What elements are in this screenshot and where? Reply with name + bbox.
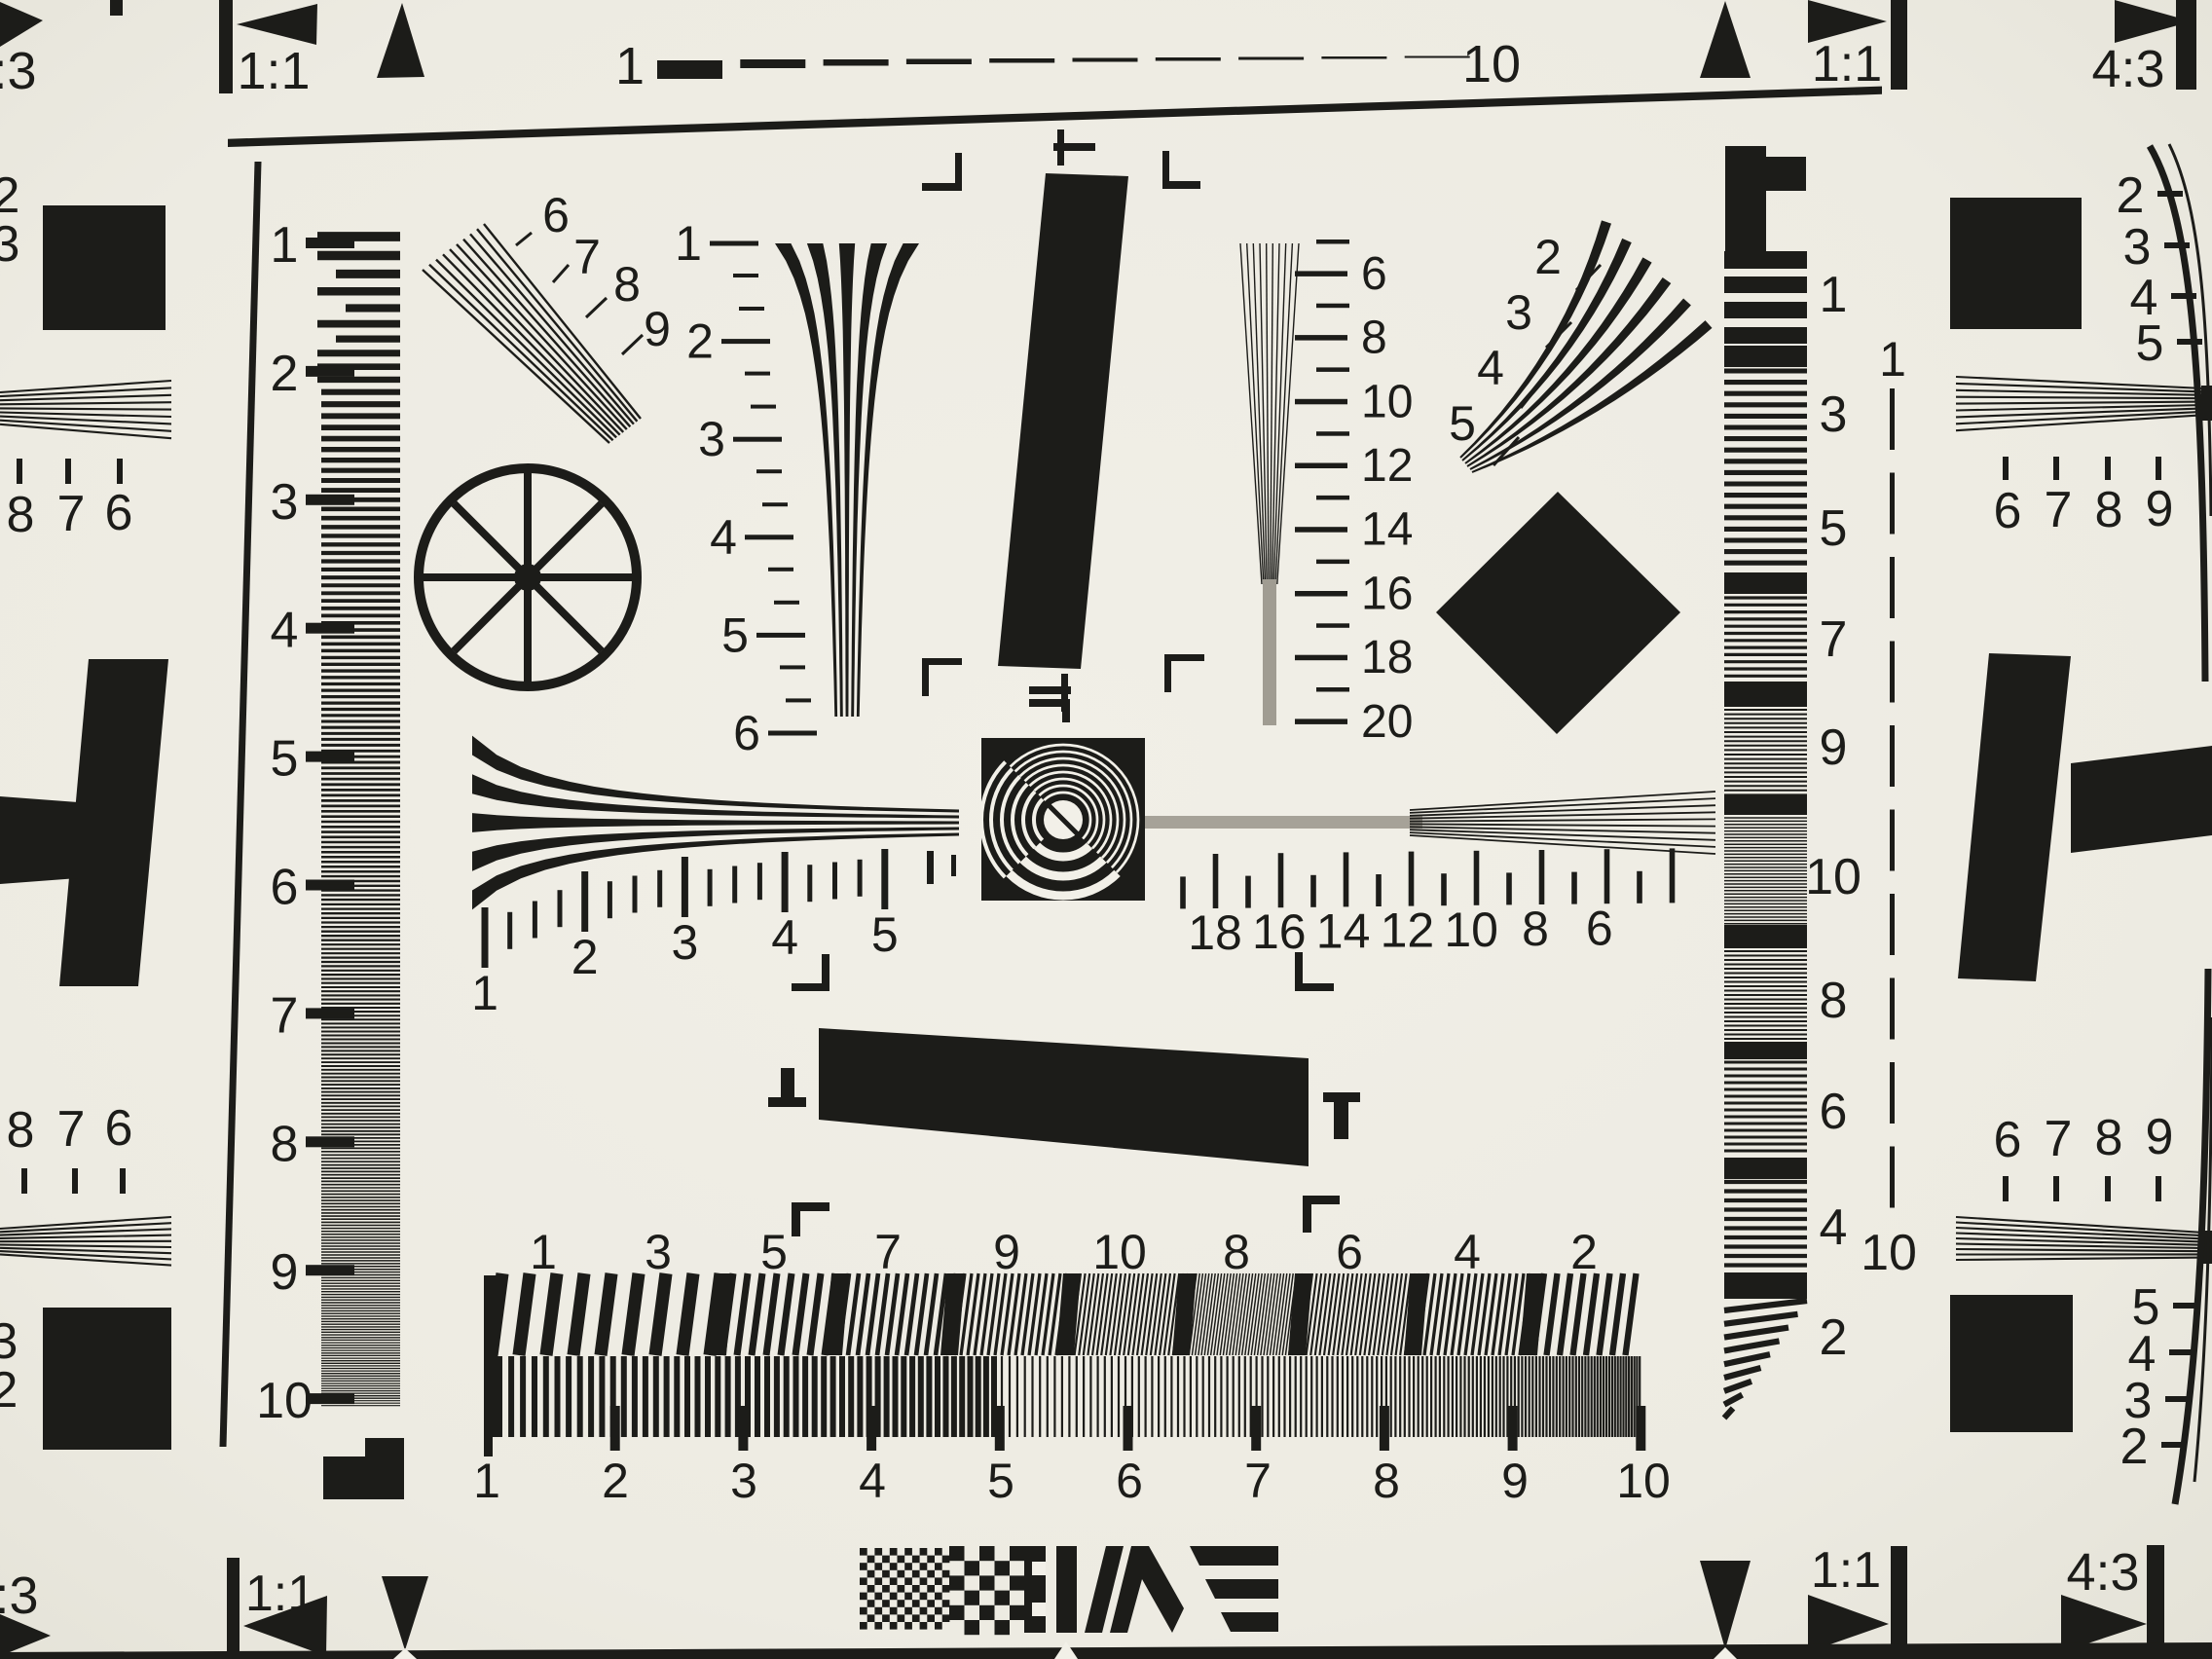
svg-text:6: 6 [1820, 1084, 1848, 1140]
svg-text:5: 5 [987, 1454, 1014, 1508]
svg-text:10: 10 [1444, 903, 1498, 957]
svg-text:6: 6 [271, 860, 299, 916]
svg-text:2: 2 [1820, 1309, 1848, 1366]
svg-text:3: 3 [645, 1225, 672, 1279]
svg-text:7: 7 [57, 1101, 86, 1158]
svg-text:4: 4 [1477, 341, 1504, 395]
svg-text:3: 3 [698, 412, 725, 466]
svg-text:5: 5 [760, 1225, 788, 1279]
svg-text:4:3: 4:3 [2066, 1543, 2139, 1602]
svg-text:1:1: 1:1 [1811, 1542, 1881, 1599]
svg-text:3: 3 [1505, 285, 1532, 340]
svg-text:20: 20 [1361, 696, 1413, 748]
svg-text:5: 5 [271, 731, 299, 788]
svg-text:3: 3 [271, 474, 299, 531]
svg-text:18: 18 [1188, 905, 1242, 960]
svg-text:5: 5 [1449, 396, 1476, 451]
svg-text:10: 10 [1616, 1454, 1671, 1508]
svg-text:4: 4 [271, 603, 299, 659]
svg-text:6: 6 [1994, 1112, 2022, 1168]
svg-text:5: 5 [1820, 500, 1848, 557]
svg-text:9: 9 [993, 1225, 1020, 1279]
svg-text:14: 14 [1316, 903, 1371, 958]
svg-text:8: 8 [1820, 973, 1848, 1029]
svg-text:6: 6 [1116, 1454, 1143, 1508]
svg-text:4: 4 [1454, 1225, 1481, 1279]
svg-text:6: 6 [542, 188, 570, 242]
svg-text:8: 8 [613, 257, 641, 312]
svg-text:16: 16 [1361, 569, 1413, 620]
svg-text:16: 16 [1252, 904, 1307, 959]
svg-text:8: 8 [1361, 313, 1387, 364]
svg-text:10: 10 [1805, 849, 1862, 905]
svg-text:1: 1 [675, 216, 702, 271]
svg-text:6: 6 [1336, 1225, 1363, 1279]
svg-text:4:3: 4:3 [0, 42, 37, 100]
svg-text:8: 8 [1223, 1225, 1250, 1279]
svg-text:4: 4 [771, 910, 798, 965]
svg-text:1: 1 [1879, 332, 1906, 387]
svg-text:1:1: 1:1 [1812, 36, 1882, 92]
svg-text:7: 7 [874, 1225, 902, 1279]
svg-text:6: 6 [1586, 901, 1613, 955]
svg-text:4:3: 4:3 [0, 1567, 39, 1625]
svg-text:10: 10 [1092, 1225, 1147, 1279]
svg-text:3: 3 [2123, 219, 2152, 276]
svg-text:6: 6 [1361, 248, 1387, 300]
svg-text:7: 7 [2045, 482, 2073, 538]
svg-text:1: 1 [473, 1454, 500, 1508]
svg-text:6: 6 [1994, 483, 2022, 539]
svg-text:6: 6 [733, 706, 760, 760]
svg-text:8: 8 [7, 487, 35, 543]
svg-text:12: 12 [1381, 903, 1435, 958]
svg-text:10: 10 [1361, 376, 1413, 427]
svg-text:6: 6 [105, 485, 133, 541]
svg-text:10: 10 [256, 1373, 313, 1429]
svg-text:2: 2 [1570, 1225, 1598, 1279]
svg-text:1: 1 [615, 37, 645, 95]
svg-text:1: 1 [471, 966, 498, 1020]
svg-text:5: 5 [871, 907, 899, 962]
svg-text:8: 8 [2095, 482, 2123, 538]
svg-text:2: 2 [686, 314, 714, 369]
svg-text:7: 7 [1244, 1454, 1272, 1508]
svg-text:2: 2 [0, 1362, 18, 1419]
svg-text:3: 3 [0, 216, 19, 273]
svg-text:4: 4 [1820, 1199, 1848, 1256]
svg-text:9: 9 [1820, 719, 1848, 776]
svg-text:12: 12 [1361, 440, 1413, 492]
svg-text:2: 2 [571, 930, 599, 984]
svg-text:7: 7 [2045, 1111, 2073, 1167]
svg-text:8: 8 [7, 1102, 35, 1159]
svg-text:18: 18 [1361, 632, 1413, 683]
svg-text:2: 2 [1534, 230, 1562, 284]
svg-text:2: 2 [2120, 1419, 2149, 1475]
svg-text:1: 1 [1820, 267, 1848, 323]
svg-text:8: 8 [1373, 1454, 1400, 1508]
svg-text:14: 14 [1361, 504, 1413, 556]
svg-text:7: 7 [271, 987, 299, 1044]
svg-text:2: 2 [602, 1454, 629, 1508]
svg-text:4:3: 4:3 [2091, 40, 2164, 98]
svg-text:10: 10 [1861, 1225, 1917, 1281]
svg-text:1:1: 1:1 [237, 42, 310, 100]
svg-text:7: 7 [1820, 611, 1848, 668]
svg-text:2: 2 [2117, 167, 2145, 224]
svg-text:8: 8 [2095, 1110, 2123, 1166]
svg-text:5: 5 [2136, 315, 2164, 372]
svg-text:7: 7 [57, 486, 86, 542]
svg-text:9: 9 [1501, 1454, 1529, 1508]
svg-text:4: 4 [710, 510, 737, 565]
svg-text:9: 9 [644, 302, 671, 356]
svg-text:8: 8 [271, 1116, 299, 1172]
svg-text:2: 2 [271, 346, 299, 402]
svg-text:9: 9 [2146, 1109, 2174, 1165]
svg-text:3: 3 [730, 1454, 757, 1508]
svg-text:8: 8 [1522, 902, 1549, 956]
svg-text:9: 9 [271, 1244, 299, 1301]
svg-text:5: 5 [721, 608, 749, 662]
svg-text:9: 9 [2146, 481, 2174, 537]
svg-text:7: 7 [573, 230, 601, 284]
svg-text:3: 3 [671, 915, 698, 970]
svg-text:4: 4 [859, 1454, 886, 1508]
svg-text:6: 6 [105, 1100, 133, 1157]
svg-text:1: 1 [530, 1225, 557, 1279]
svg-text:3: 3 [1820, 387, 1848, 443]
svg-text:1: 1 [271, 217, 299, 274]
svg-text:10: 10 [1462, 35, 1521, 93]
